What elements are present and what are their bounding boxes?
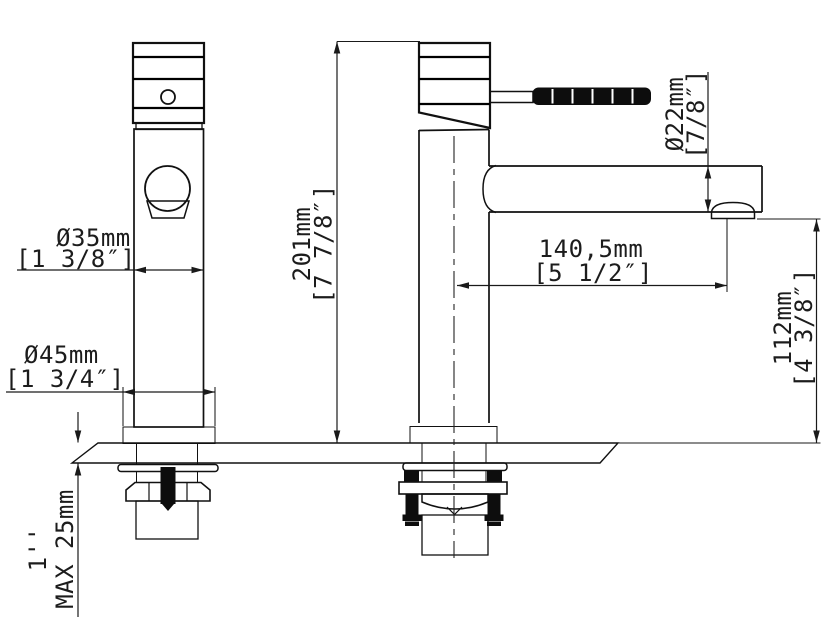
side-stud-left: [406, 494, 419, 516]
dim-deck-thickness: 1'' MAX 25mm: [24, 412, 81, 617]
arrowhead: [334, 431, 341, 443]
front-mounting-stud: [161, 467, 176, 504]
lever-rod: [490, 92, 533, 103]
side-body-top-edge: [419, 130, 489, 131]
dim-outlet-height-imperial: [4 3/8″]: [790, 268, 818, 388]
countertop-hatched-deck: [72, 443, 618, 463]
front-faucet-body: [134, 129, 204, 427]
arrowhead: [75, 431, 82, 443]
dim-spout-diameter-imperial: [7/8″]: [682, 69, 710, 159]
side-stud-left-foot: [403, 515, 422, 522]
dim-deck-thickness-imperial: 1'': [24, 527, 52, 572]
arrowhead: [134, 267, 146, 273]
dim-spout-reach: 140,5mm [5 1/2″]: [457, 219, 727, 292]
front-spout-outlet-circle: [145, 166, 190, 211]
spout-fill: [489, 166, 762, 212]
dim-outlet-height: 112mm [4 3/8″]: [618, 219, 821, 443]
side-stud-left-tip: [405, 522, 419, 527]
dim-deck-thickness-metric: MAX 25mm: [51, 489, 79, 609]
arrowhead: [334, 42, 341, 54]
arrowhead: [192, 267, 204, 273]
front-view: [118, 43, 218, 539]
arrowhead: [715, 282, 727, 288]
countertop-section: [72, 443, 618, 463]
dimension-annotations: Ø35mm [1 3/8″] Ø45mm [1 3/4″] 201mm [7 7…: [5, 42, 821, 618]
side-stud-upper-left: [404, 471, 419, 483]
arrowhead: [75, 464, 82, 476]
side-stud-right: [488, 494, 501, 516]
dim-total-height-imperial: [7 7/8″]: [310, 184, 338, 304]
dim-spout-reach-imperial: [5 1/2″]: [533, 259, 653, 287]
side-stud-right-tip: [487, 522, 501, 527]
dim-total-height: 201mm [7 7/8″]: [288, 42, 420, 443]
dim-body-diameter-imperial: [1 3/8″]: [16, 245, 136, 273]
arrowhead: [123, 389, 135, 395]
dim-base-diameter: Ø45mm [1 3/4″]: [5, 341, 215, 426]
front-mounting-stud-tip: [162, 504, 174, 511]
side-mounting-bracket: [399, 482, 507, 494]
front-knurled-handle-cap: [133, 43, 204, 123]
faucet-dimension-drawing: Ø35mm [1 3/8″] Ø45mm [1 3/4″] 201mm [7 7…: [0, 0, 822, 619]
side-mounting-nut: [422, 494, 488, 509]
side-knurled-handle-cap: [419, 43, 490, 128]
arrowhead: [813, 220, 820, 232]
side-stud-upper-right: [487, 471, 502, 483]
handle-cap-hole: [161, 90, 175, 104]
side-stud-right-foot: [485, 515, 504, 522]
side-inlet-threaded-pipe: [422, 515, 488, 555]
dim-body-diameter: Ø35mm [1 3/8″]: [16, 224, 204, 273]
technical-drawing-page: Ø35mm [1 3/8″] Ø45mm [1 3/4″] 201mm [7 7…: [0, 0, 822, 619]
front-aerator: [147, 201, 189, 218]
dim-base-diameter-imperial: [1 3/4″]: [5, 365, 125, 393]
arrowhead: [813, 431, 820, 443]
front-threaded-shank: [137, 443, 198, 465]
side-washer: [403, 463, 507, 471]
arrowhead: [203, 389, 215, 395]
